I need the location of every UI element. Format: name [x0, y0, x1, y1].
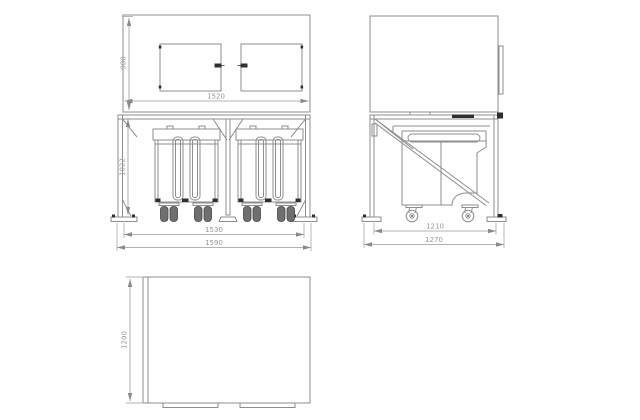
waste-cart-left — [153, 126, 220, 222]
plan-edge-strip — [143, 277, 148, 403]
dimension-1270-label: 1270 — [425, 236, 443, 244]
side-caster-right — [462, 205, 478, 222]
top-view: 1200 — [121, 277, 311, 408]
waste-cart-right — [236, 126, 303, 222]
hinge-mark — [301, 46, 304, 49]
side-bin — [393, 126, 490, 222]
dimension-1022-label: 1022 — [119, 158, 127, 176]
plan-body — [148, 277, 310, 403]
side-dimensions: 1210 1270 — [364, 223, 504, 249]
center-post — [226, 119, 230, 215]
side-hinge-strip — [499, 46, 503, 94]
dimension-1210-label: 1210 — [426, 223, 444, 231]
rail-knob — [497, 113, 503, 119]
dimension-1590-label: 1590 — [205, 239, 223, 247]
rail-latch — [452, 115, 474, 119]
dimension-1530: 1530 — [124, 223, 304, 238]
dimension-1530-label: 1530 — [205, 226, 223, 234]
base-plate — [111, 217, 137, 222]
dimension-1200-label: 1200 — [121, 331, 129, 349]
dimension-1520-label: 1520 — [207, 93, 225, 101]
base-plate — [487, 217, 506, 222]
side-caster-left — [406, 205, 422, 222]
dimension-1200: 1200 — [121, 277, 145, 403]
hinge-mark — [301, 86, 304, 89]
side-hood — [370, 16, 498, 112]
hinge-mark — [159, 86, 162, 89]
dimension-900-label: 900 — [120, 56, 128, 69]
dimension-1210: 1210 — [374, 223, 496, 235]
center-foot — [219, 217, 237, 222]
hinge-mark — [159, 46, 162, 49]
side-view: 1210 1270 — [362, 16, 506, 248]
diagonal-brace — [375, 119, 489, 203]
plan-tab — [240, 403, 295, 408]
technical-drawing-canvas: 900 1520 1022 1530 1590 — [0, 0, 640, 420]
plan-tab — [163, 403, 218, 408]
front-view: 900 1520 1022 1530 1590 — [111, 15, 317, 251]
drawing-svg: 900 1520 1022 1530 1590 — [0, 0, 640, 420]
base-plate — [362, 217, 381, 222]
